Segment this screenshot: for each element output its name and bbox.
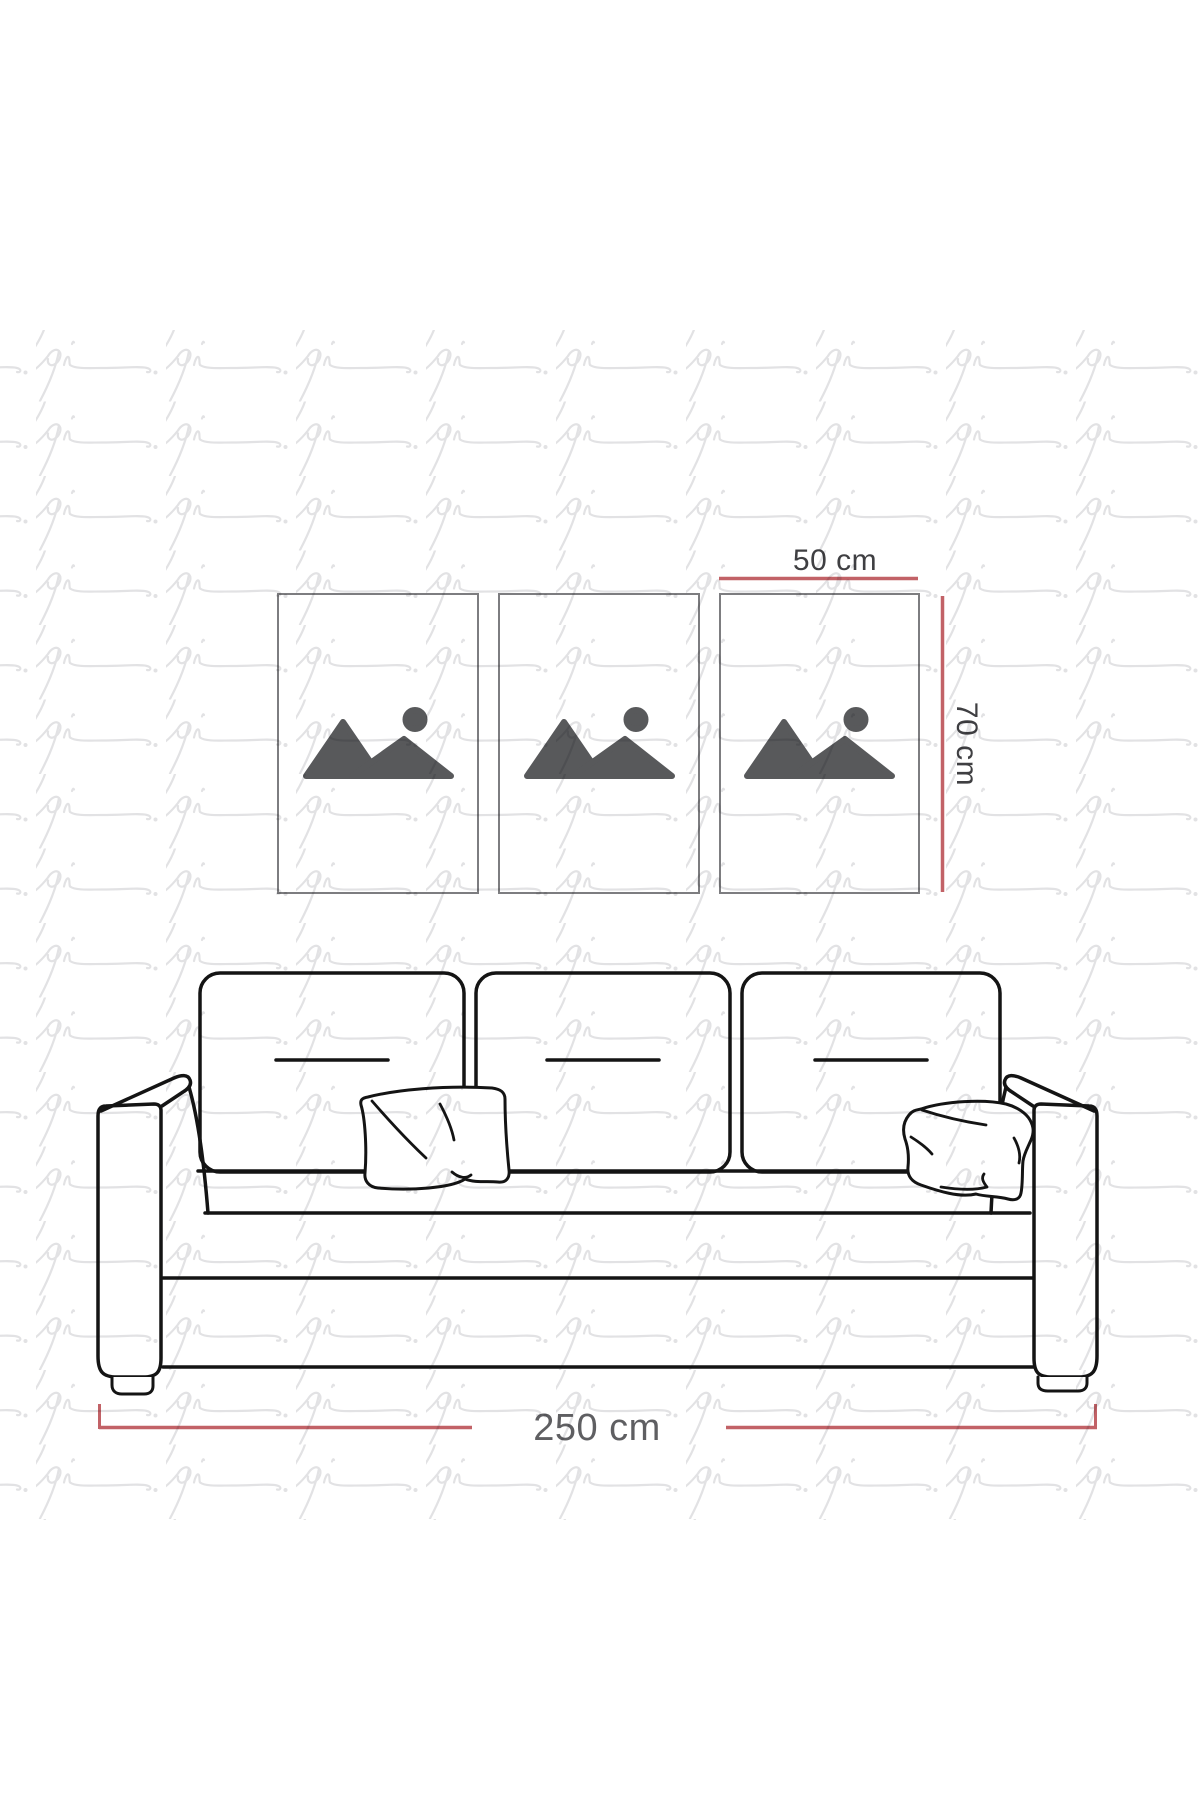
product-dimension-diagram: 50 cm 70 cm 250 cm <box>0 0 1200 1800</box>
watermark-pattern-overlay <box>0 330 1200 1520</box>
